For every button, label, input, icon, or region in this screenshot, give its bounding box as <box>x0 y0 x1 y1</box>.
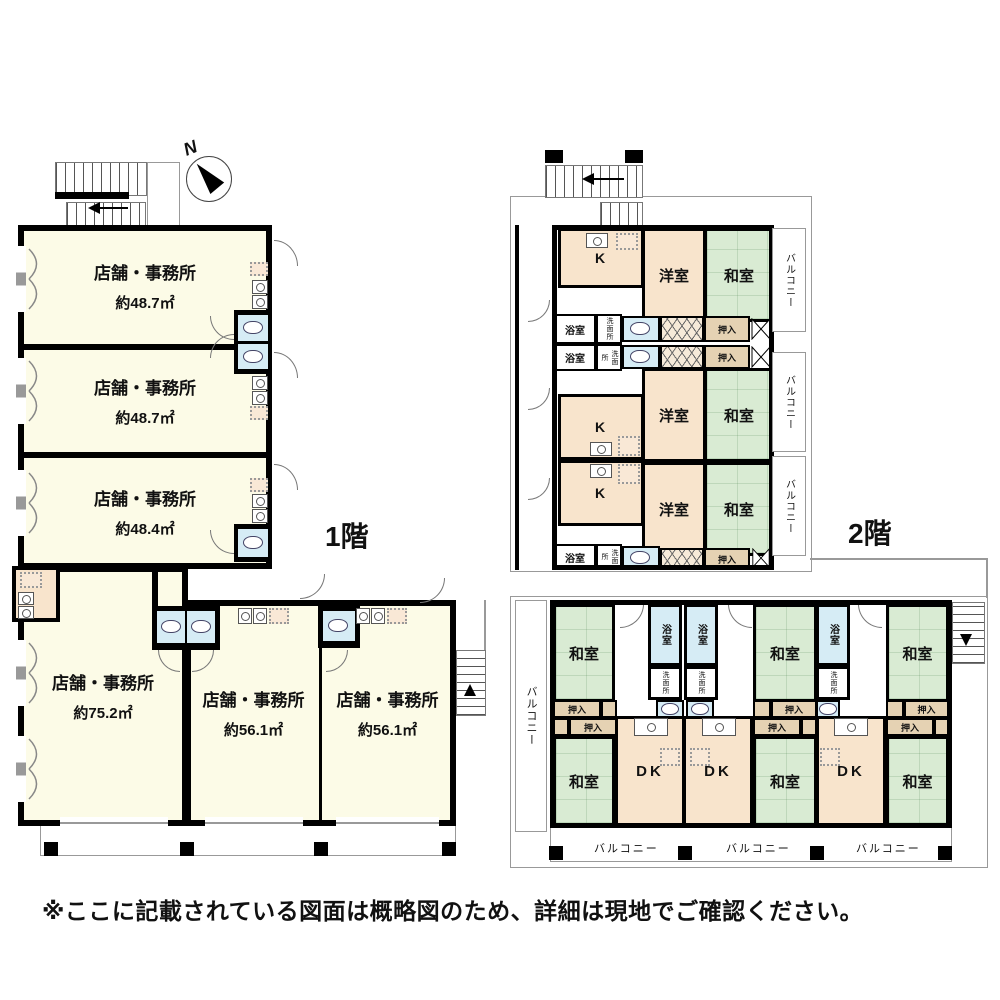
balcony-label: バルコニー <box>523 686 539 746</box>
f1-upper-outer-wall <box>18 225 272 569</box>
sink-icon <box>356 608 370 624</box>
stair-post <box>545 150 563 163</box>
stair-post <box>625 150 643 163</box>
sink-icon <box>252 280 268 294</box>
rail-line <box>484 600 486 652</box>
f2-upper-outer-wall <box>552 225 774 570</box>
balcony-post <box>810 846 824 860</box>
equipment-outline <box>250 262 268 276</box>
toilet-icon <box>328 619 348 632</box>
floor2-label: 2階 <box>848 512 892 552</box>
window <box>16 736 26 802</box>
f2-balcony-1: バルコニー <box>772 228 806 332</box>
equipment-outline <box>250 406 268 420</box>
range-icon <box>371 608 385 624</box>
balcony-label: バルコニー <box>782 479 797 534</box>
stair-up-arrow-icon <box>464 684 476 696</box>
toilet-icon <box>161 620 181 633</box>
door-arc <box>274 352 298 378</box>
f2-eaves-line <box>810 558 988 560</box>
toilet-icon <box>191 620 211 633</box>
f2-lower-outer-wall <box>550 600 952 828</box>
toilet-icon <box>243 321 263 334</box>
entry-arrow-icon <box>582 173 594 185</box>
sink-icon <box>238 608 252 624</box>
balcony-label: バルコニー <box>594 840 659 856</box>
stair-down-arrow-icon <box>960 634 972 646</box>
balcony-label: バルコニー <box>782 253 797 308</box>
range-icon <box>252 295 268 309</box>
porch-post <box>44 842 58 856</box>
door-arc <box>300 574 325 599</box>
equipment-outline <box>250 478 268 492</box>
porch-post <box>314 842 328 856</box>
door-arc <box>274 464 298 490</box>
range-icon <box>253 608 267 624</box>
f2-balcony-3: バルコニー <box>772 456 806 556</box>
balcony-post <box>678 846 692 860</box>
porch-post <box>180 842 194 856</box>
double-shutter-icon <box>28 738 46 800</box>
range-icon <box>18 606 34 619</box>
double-shutter-icon <box>28 472 46 534</box>
floor1-label: 1階 <box>325 515 369 555</box>
range-icon <box>252 391 268 405</box>
toilet-icon <box>243 536 263 549</box>
double-shutter-icon <box>28 642 46 704</box>
toilet-icon <box>243 350 263 363</box>
entry-arrow-icon <box>88 202 100 214</box>
sink-icon <box>252 376 268 390</box>
range-icon <box>252 509 268 523</box>
f1-porch <box>40 826 456 856</box>
disclaimer-note: ※ここに記載されている図面は概略図のため、詳細は現地でご確認ください。 <box>42 892 972 926</box>
f2-balcony-2: バルコニー <box>772 352 806 452</box>
f2-balcony-left: バルコニー <box>515 600 547 832</box>
f1-stair-landing <box>147 162 180 228</box>
f2-side-staircase <box>952 602 985 664</box>
f2-eaves-line <box>986 558 988 598</box>
entry-line <box>100 207 128 209</box>
sink-icon <box>18 592 34 605</box>
balcony-post <box>549 846 563 860</box>
f2-staircase <box>545 165 643 198</box>
window <box>16 640 26 706</box>
balcony-label: バルコニー <box>782 375 797 430</box>
floorplan-canvas: N 店舗・事務所 約48.7㎡ 店舗・事務所 約48.7㎡ 店舗・事務所 約48… <box>0 0 1000 1000</box>
window <box>16 358 26 424</box>
window <box>16 246 26 312</box>
balcony-post <box>938 846 952 860</box>
f1-side-staircase <box>456 650 486 716</box>
sink-icon <box>252 494 268 508</box>
entry-line <box>594 178 624 180</box>
porch-post <box>442 842 456 856</box>
double-shutter-icon <box>28 248 46 310</box>
equipment-outline <box>20 572 42 588</box>
door-arc <box>274 240 298 266</box>
wall <box>55 192 129 199</box>
balcony-label: バルコニー <box>726 840 791 856</box>
balcony-label: バルコニー <box>856 840 921 856</box>
double-shutter-icon <box>28 360 46 422</box>
compass-north-label: N <box>181 136 201 160</box>
equipment-outline <box>387 608 407 624</box>
window <box>16 470 26 536</box>
f1-staircase <box>55 162 147 196</box>
equipment-outline <box>269 608 289 624</box>
wall <box>152 566 158 606</box>
